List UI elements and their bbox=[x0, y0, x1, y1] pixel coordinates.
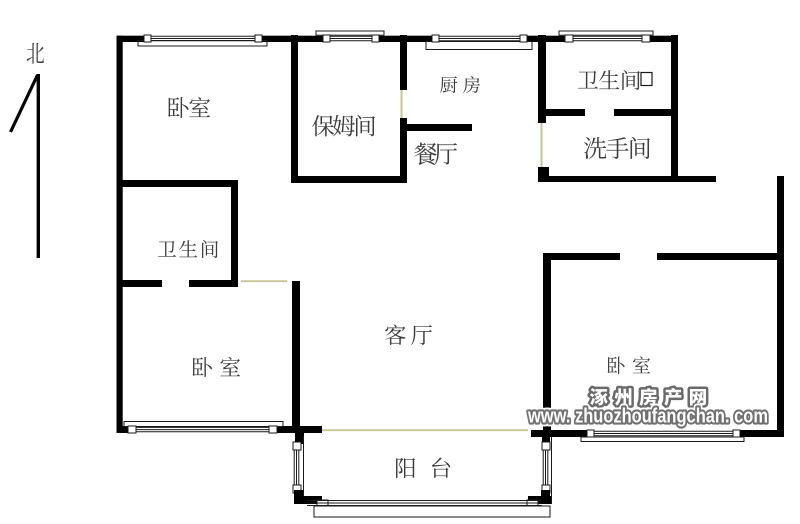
svg-text:www. zhuozhoufangchan. com: www. zhuozhoufangchan. com bbox=[527, 406, 768, 428]
